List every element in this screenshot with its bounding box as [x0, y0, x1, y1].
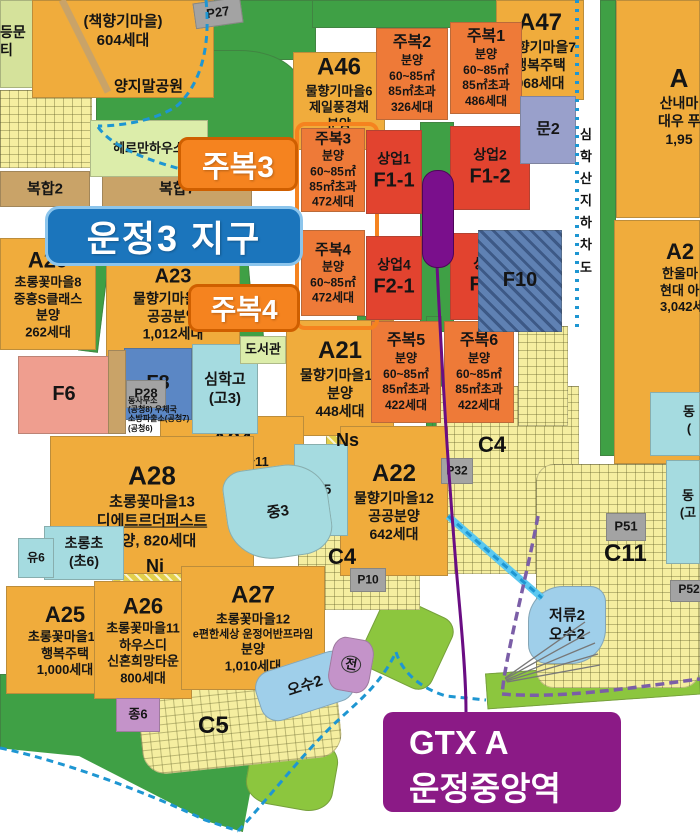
- parcel-bokhap2: 복합2: [0, 171, 90, 207]
- parcel-sangup2: 상업2F1-2: [450, 126, 530, 210]
- parcel-f10: F10: [478, 230, 562, 332]
- parcel-p52: P52: [670, 580, 700, 602]
- parcel-dongpae-1: 동(: [650, 392, 700, 456]
- parcel-jong6: 종6: [116, 698, 160, 732]
- parcel-p32: P32: [441, 458, 473, 484]
- parcel-sangup1: 상업1F1-1: [366, 130, 422, 214]
- parcel-jeoryu2: 저류2오수2: [528, 586, 606, 664]
- parcel-a29: A29초롱꽃마을8중흥S클래스분양262세대: [0, 238, 96, 350]
- parcel-simhak-highschool-label: 심학고(고3): [192, 370, 258, 408]
- parcel-p10: P10: [350, 568, 386, 592]
- parcel-sangup1-label: 상업1F1-1: [366, 150, 422, 194]
- parcel-jubok2-label: 주복2분양60~85㎡85㎡초과326세대: [376, 33, 448, 115]
- parcel-jong6-label: 종6: [116, 707, 160, 724]
- unjeong3-district-map: (책향기마을)604세대A46물향기마을6제일풍경채분양400세대A47물향기마…: [0, 0, 700, 838]
- parcel-p32-label: P32: [441, 463, 473, 478]
- parcel-dongpae-1-label: 동(: [678, 404, 700, 437]
- parcel-jubok5-label: 주복5분양60~85㎡85㎡초과422세대: [371, 331, 441, 413]
- parcel-tan-column: [108, 350, 126, 434]
- parcel-a23: A23물향기마을10공공분양1,012세대: [106, 250, 240, 358]
- parcel-sangup4: 상업4F2-1: [366, 236, 422, 320]
- parcel-mun2-label: 문2: [520, 120, 576, 140]
- parcel-bokhap2-label: 복합2: [0, 179, 90, 198]
- parcel-bokhap7-label: 복합7: [102, 179, 252, 198]
- parcel-library: 도서관: [240, 336, 286, 364]
- parcel-p28: P28: [126, 380, 166, 408]
- parcel-dongpae-2-label: 동(고: [676, 488, 700, 521]
- parcel-sannae-label: A산내마대우 푸1,95: [658, 62, 700, 149]
- parcel-jubok1-label: 주복1분양60~85㎡85㎡초과486세대: [450, 27, 522, 109]
- parcel-yu6: 유6: [18, 538, 54, 578]
- parcel-dongpae-2: 동(고: [666, 460, 700, 564]
- parcel-a22: A22물향기마을12공공분양642세대: [340, 426, 448, 576]
- parcel-jubok5: 주복5분양60~85㎡85㎡초과422세대: [371, 321, 441, 423]
- parcel-chaekhyanggi-label: (책향기마을)604세대: [32, 12, 214, 50]
- parcel-jung3-label: 중3: [225, 495, 331, 528]
- parcel-library-label: 도서관: [240, 342, 286, 359]
- parcel-jeoryu2-label: 저류2오수2: [528, 606, 606, 644]
- parcel-a23-label: A23물향기마을10공공분양1,012세대: [106, 264, 240, 343]
- lots-east-jubok6: [518, 326, 568, 426]
- parcel-a26: A26초롱꽃마을11하우스디신혼희망타운800세대: [94, 581, 192, 699]
- parcel-jubok1: 주복1분양60~85㎡85㎡초과486세대: [450, 22, 522, 114]
- parcel-a22-label: A22물향기마을12공공분양642세대: [340, 459, 448, 543]
- parcel-yu6-label: 유6: [18, 550, 54, 565]
- parcel-f6: F6: [18, 356, 110, 434]
- green-station-strip: [420, 122, 454, 332]
- parcel-p28-label: P28: [126, 386, 166, 403]
- parcel-sangup2-label: 상업2F1-2: [450, 146, 530, 190]
- gtx-line-name: GTX A: [409, 720, 621, 766]
- parcel-sannae: A산내마대우 푸1,95: [616, 0, 700, 218]
- parcel-jubok6: 주복6분양60~85㎡85㎡초과422세대: [444, 321, 514, 423]
- lots-topleft: [0, 90, 92, 168]
- parcel-chaekhyanggi: (책향기마을)604세대: [32, 0, 214, 98]
- parcel-p51: P51: [606, 513, 646, 541]
- parcel-herrmann: 헤르만하우스: [90, 120, 208, 177]
- parcel-herrmann-label: 헤르만하우스: [90, 140, 208, 157]
- parcel-jeon-label: 전: [329, 653, 373, 677]
- parcel-f10-label: F10: [478, 268, 562, 294]
- parcel-a26-label: A26초롱꽃마을11하우스디신혼희망타운800세대: [94, 593, 192, 688]
- parcel-p51-label: P51: [606, 519, 646, 536]
- parcel-chorong-elementary-label: 초롱초(초6): [44, 535, 124, 571]
- parcel-a29-label: A29초롱꽃마을8중흥S클래스분양262세대: [0, 247, 96, 342]
- parcel-p27-label: P27: [193, 1, 243, 24]
- parcel-jubok6-label: 주복6분양60~85㎡85㎡초과422세대: [444, 331, 514, 413]
- parcel-sangup4-label: 상업4F2-1: [366, 256, 422, 300]
- gtx-station-name: 운정중앙역: [409, 766, 621, 812]
- parcel-chorong-elementary: 초롱초(초6): [44, 526, 124, 580]
- parcel-p52-label: P52: [674, 582, 700, 597]
- parcel-hanul-label: A2한울마현대 아이3,042세: [660, 238, 700, 316]
- callout-gtx-station: GTX A 운정중앙역: [383, 712, 621, 812]
- parcel-p10-label: P10: [350, 572, 386, 587]
- parcel-jubok2: 주복2분양60~85㎡85㎡초과326세대: [376, 28, 448, 120]
- parcel-jeon: 전: [326, 635, 377, 695]
- parcel-f6-label: F6: [18, 382, 110, 408]
- road-simhaksan-underpass: 심학산지하차도: [580, 124, 592, 279]
- parcel-mun2: 문2: [520, 96, 576, 164]
